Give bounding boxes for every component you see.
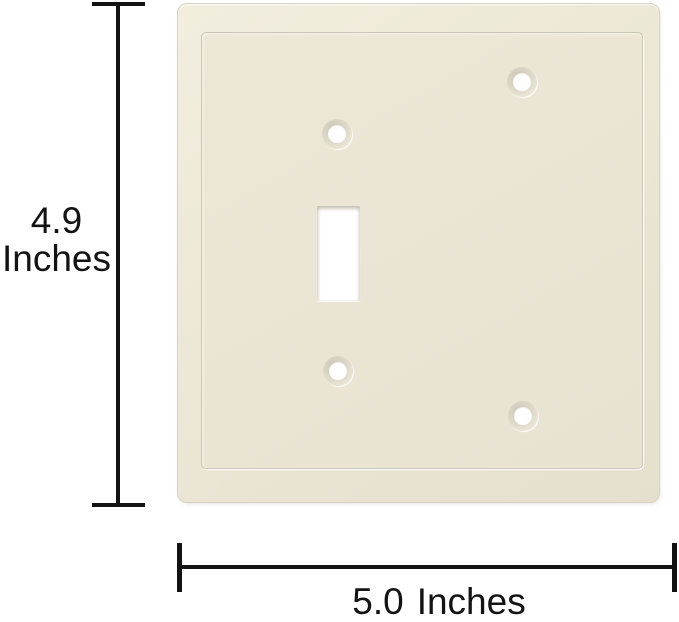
height-value: 4.9 — [0, 202, 113, 240]
screw-hole-blank-bottom — [508, 401, 538, 431]
width-value: 5.0 — [352, 583, 403, 621]
width-unit: Inches — [417, 583, 526, 621]
screw-hole-toggle-bottom — [323, 356, 353, 386]
width-dimension-line — [179, 565, 674, 569]
height-unit: Inches — [0, 240, 113, 278]
wall-plate — [177, 3, 660, 503]
height-dimension-tick-bottom — [92, 503, 145, 507]
height-dimension-label: 4.9 Inches — [0, 202, 113, 278]
toggle-switch-cutout — [317, 206, 360, 301]
height-dimension-tick-top — [92, 2, 145, 6]
product-dimension-figure: 4.9 Inches 5.0 Inches — [0, 0, 679, 621]
screw-hole-blank-top — [507, 67, 537, 97]
width-dimension-tick-left — [177, 543, 182, 592]
height-dimension-line — [116, 2, 120, 507]
wall-plate-inner-panel — [201, 32, 643, 469]
width-dimension-tick-right — [672, 543, 677, 592]
screw-hole-toggle-top — [322, 119, 352, 149]
width-dimension-label: 5.0 Inches — [299, 583, 579, 621]
